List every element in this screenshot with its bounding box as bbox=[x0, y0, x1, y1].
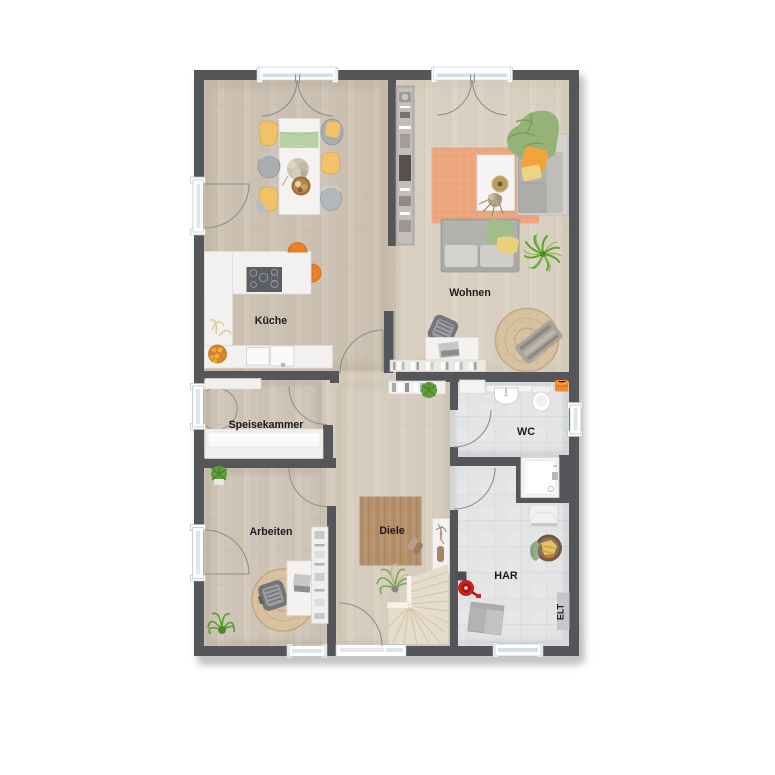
svg-text:Speisekammer: Speisekammer bbox=[229, 419, 304, 431]
svg-text:WC: WC bbox=[517, 426, 535, 438]
svg-text:Arbeiten: Arbeiten bbox=[250, 526, 293, 538]
svg-text:Küche: Küche bbox=[255, 315, 287, 327]
svg-text:Diele: Diele bbox=[379, 525, 404, 537]
svg-text:Wohnen: Wohnen bbox=[449, 287, 491, 299]
svg-text:ELT: ELT bbox=[556, 603, 566, 620]
svg-text:HAR: HAR bbox=[494, 570, 518, 582]
